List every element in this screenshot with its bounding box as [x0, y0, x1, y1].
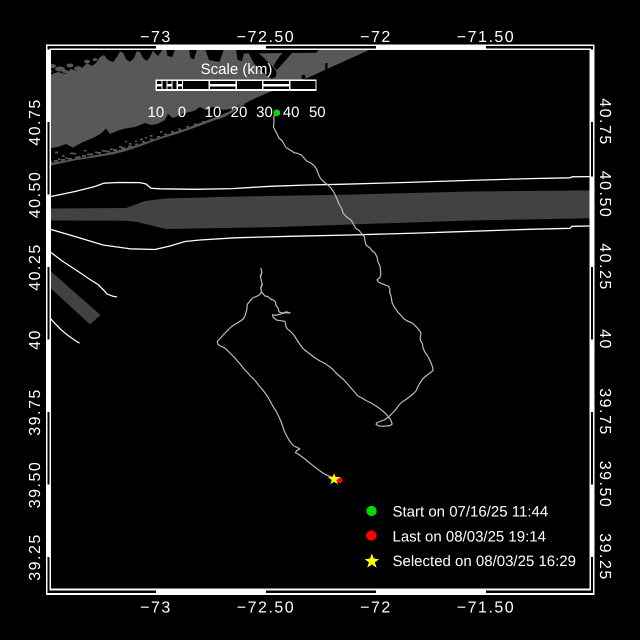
svg-text:39.75: 39.75 — [596, 388, 613, 436]
svg-text:40: 40 — [27, 329, 44, 350]
svg-text:40.50: 40.50 — [27, 171, 44, 219]
svg-text:40.25: 40.25 — [596, 243, 613, 291]
svg-text:39.25: 39.25 — [27, 533, 44, 581]
svg-text:40.50: 40.50 — [596, 171, 613, 219]
svg-text:−73: −73 — [140, 29, 172, 46]
svg-text:−72.50: −72.50 — [237, 29, 295, 46]
svg-text:−72: −72 — [360, 29, 392, 46]
svg-text:40.75: 40.75 — [596, 98, 613, 146]
svg-text:30: 30 — [256, 104, 273, 121]
svg-text:50: 50 — [309, 104, 326, 121]
svg-text:−72.50: −72.50 — [237, 600, 295, 617]
svg-text:0: 0 — [178, 104, 186, 121]
svg-text:20: 20 — [231, 104, 248, 121]
svg-text:10: 10 — [205, 104, 222, 121]
svg-text:39.25: 39.25 — [596, 533, 613, 581]
svg-text:40.25: 40.25 — [27, 243, 44, 291]
svg-text:40: 40 — [283, 104, 300, 121]
svg-text:40.75: 40.75 — [27, 98, 44, 146]
svg-text:10: 10 — [148, 104, 165, 121]
svg-text:Selected on 08/03/25 16:29: Selected on 08/03/25 16:29 — [393, 553, 577, 570]
svg-text:39.75: 39.75 — [27, 388, 44, 436]
svg-text:−71.50: −71.50 — [457, 29, 515, 46]
svg-text:−72: −72 — [360, 600, 392, 617]
svg-text:Scale (km): Scale (km) — [201, 61, 273, 78]
svg-text:Start on 07/16/25 11:44: Start on 07/16/25 11:44 — [393, 503, 549, 520]
svg-text:Last on 08/03/25 19:14: Last on 08/03/25 19:14 — [393, 528, 546, 545]
svg-text:40: 40 — [596, 329, 613, 350]
svg-text:−71.50: −71.50 — [457, 600, 515, 617]
svg-text:−73: −73 — [140, 600, 172, 617]
svg-text:39.50: 39.50 — [27, 461, 44, 509]
svg-text:39.50: 39.50 — [596, 461, 613, 509]
